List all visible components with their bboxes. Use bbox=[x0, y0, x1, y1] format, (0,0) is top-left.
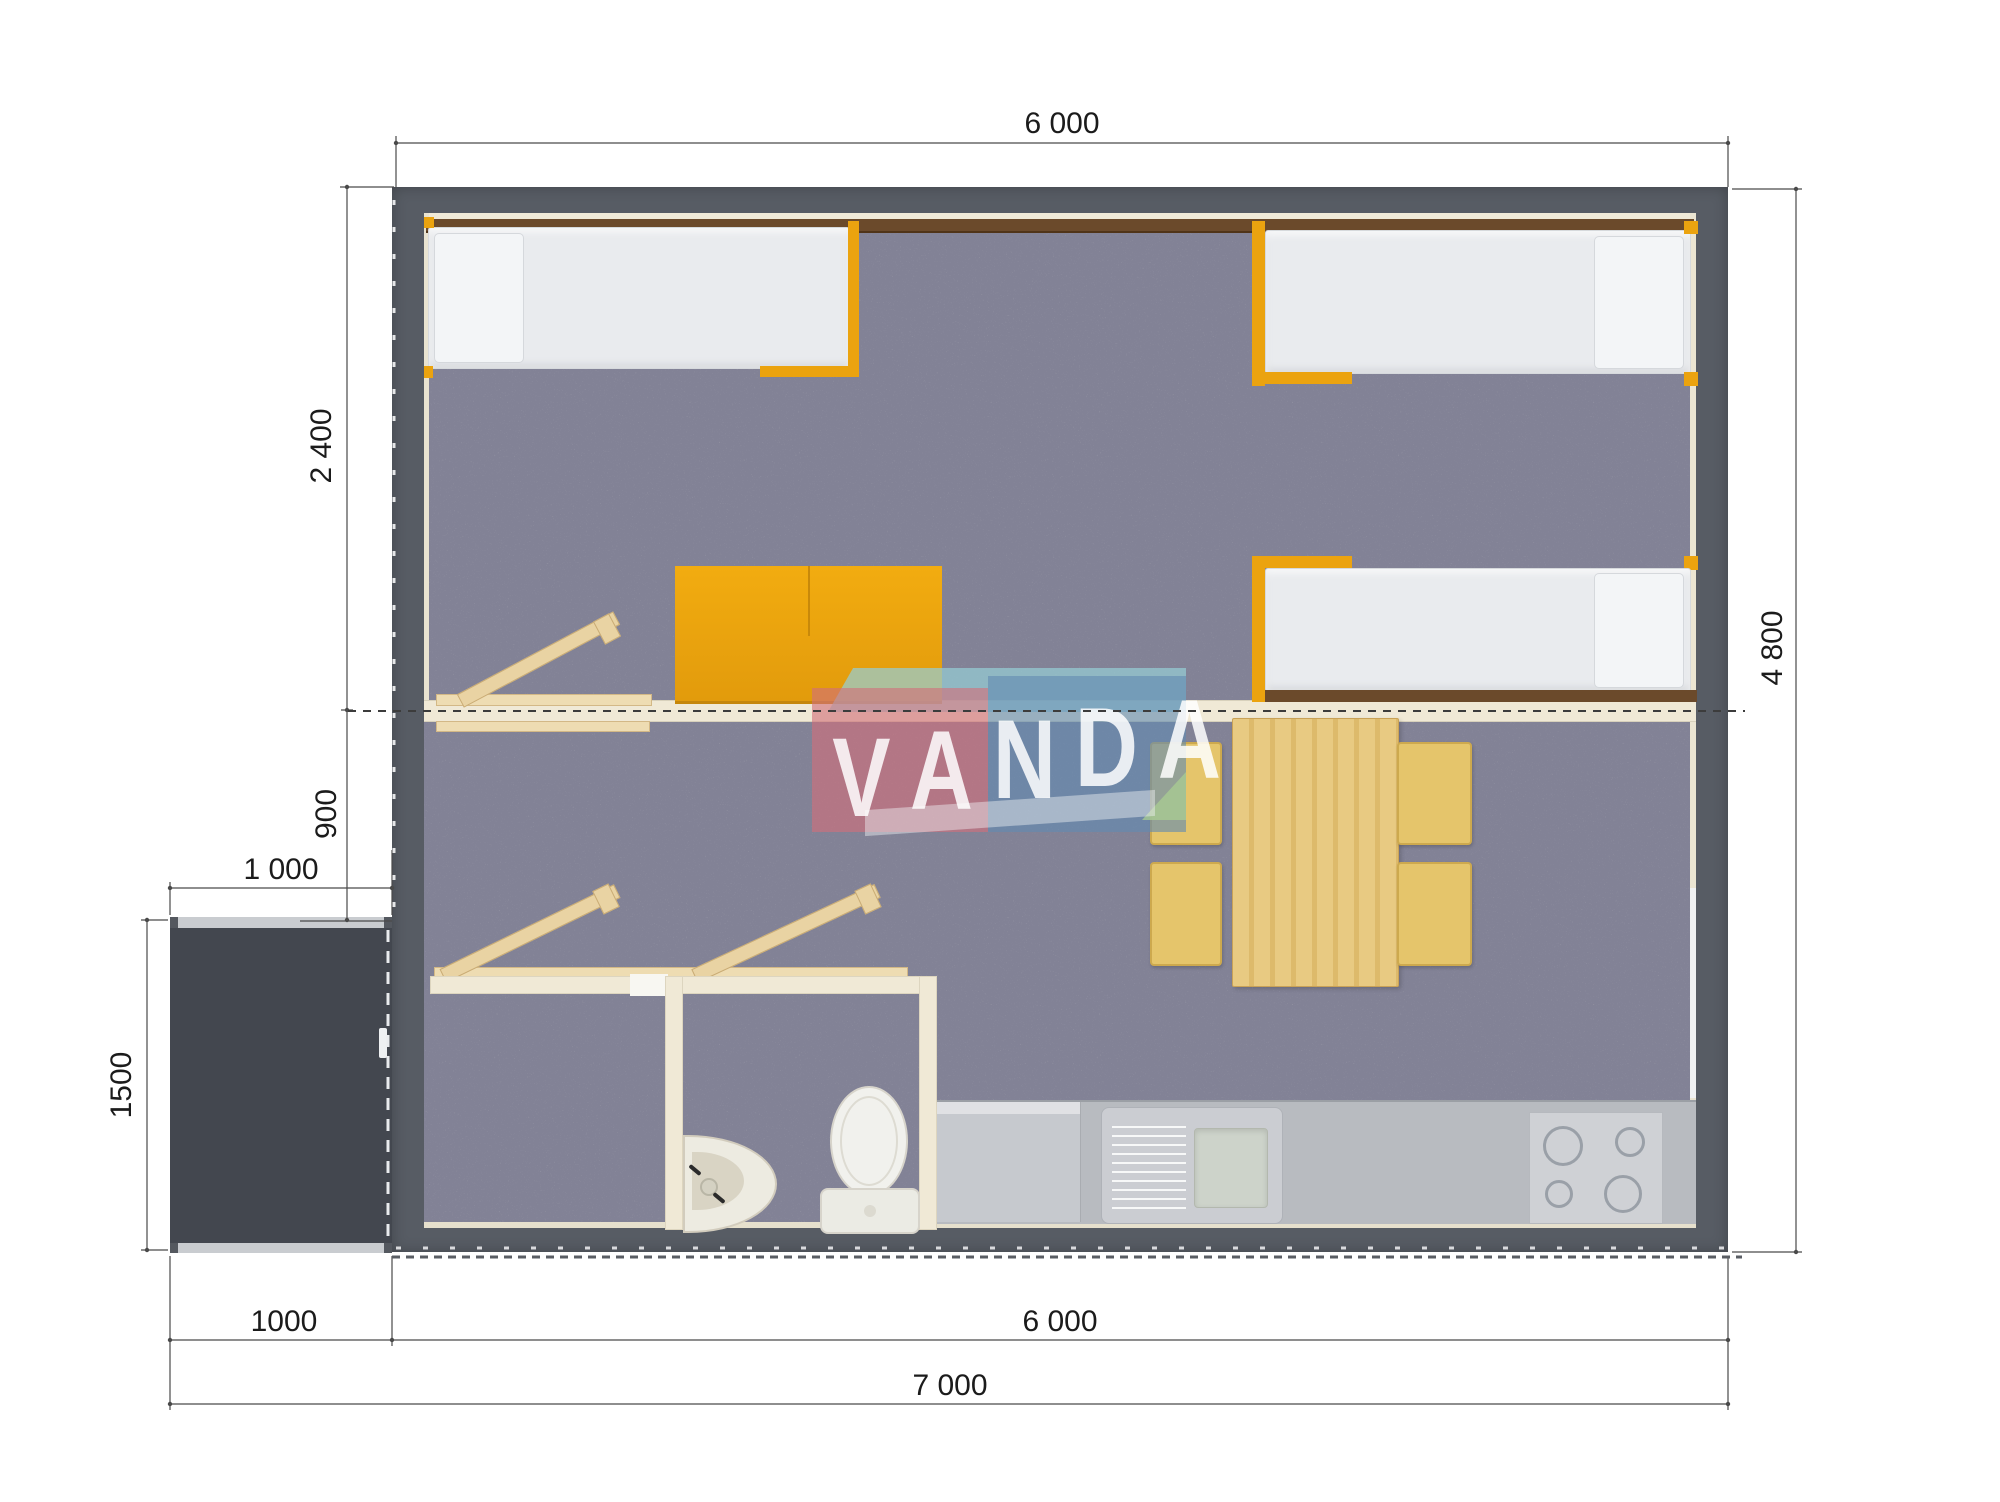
bed-frame bbox=[1252, 372, 1352, 384]
stove-burner-icon bbox=[1604, 1175, 1642, 1213]
kitchen-cabinet bbox=[937, 1102, 1081, 1222]
dim-label-bottom-porch: 1000 bbox=[251, 1305, 318, 1338]
bed-frame bbox=[1252, 221, 1265, 386]
flush-button-icon bbox=[864, 1205, 876, 1217]
dim-label-bottom-main: 6 000 bbox=[1022, 1305, 1097, 1338]
stove-burner-icon bbox=[1543, 1126, 1583, 1166]
porch-step-cap bbox=[384, 1243, 392, 1253]
dim-label-porch-depth: 1500 bbox=[105, 1052, 138, 1119]
bed-frame bbox=[1252, 556, 1352, 568]
bathroom-wall-middle bbox=[665, 976, 683, 1230]
chair bbox=[1397, 742, 1472, 845]
bathroom-door bbox=[630, 974, 668, 996]
chair bbox=[1397, 862, 1472, 966]
toilet-tank bbox=[820, 1188, 920, 1234]
bed-headboard bbox=[1265, 690, 1697, 702]
drainboard-icon bbox=[1112, 1126, 1186, 1210]
entrance-door-handle-icon bbox=[379, 1028, 387, 1058]
bathroom-wall-right bbox=[919, 976, 937, 1230]
porch-step-cap bbox=[384, 917, 392, 928]
bed-pillow bbox=[1594, 236, 1684, 369]
stove-burner-icon bbox=[1545, 1180, 1573, 1208]
bed-frame bbox=[424, 366, 433, 378]
chair bbox=[1150, 862, 1222, 966]
dim-label-hall-depth: 900 bbox=[310, 789, 343, 839]
bed-frame bbox=[1252, 556, 1265, 702]
bathroom-wall-top bbox=[430, 976, 937, 994]
kitchen-cabinet-highlight bbox=[937, 1102, 1080, 1114]
bed-frame bbox=[848, 221, 859, 377]
porch-step-cap bbox=[170, 1243, 178, 1253]
dim-label-top-width: 6 000 bbox=[1024, 107, 1099, 140]
dim-label-porch-width: 1 000 bbox=[243, 853, 318, 886]
floor-plan: V A N D A bbox=[0, 0, 2000, 1502]
porch-step-cap bbox=[170, 917, 178, 928]
bed-pillow bbox=[434, 233, 524, 363]
stove bbox=[1529, 1112, 1663, 1224]
window-right-wall bbox=[1690, 888, 1696, 1098]
porch bbox=[170, 928, 392, 1243]
toilet-seat bbox=[840, 1096, 898, 1186]
wardrobe-door-seam bbox=[808, 566, 810, 636]
bed-frame bbox=[760, 366, 848, 377]
bed-frame bbox=[424, 217, 434, 228]
dining-table bbox=[1232, 718, 1399, 987]
stove-burner-icon bbox=[1615, 1127, 1645, 1157]
chair bbox=[1150, 742, 1222, 845]
bed-pillow bbox=[1594, 573, 1684, 688]
toilet bbox=[830, 1086, 908, 1196]
bed-frame bbox=[1684, 372, 1698, 386]
bench-rail bbox=[436, 721, 650, 732]
bed-frame bbox=[1684, 221, 1698, 234]
dim-label-side-height: 4 800 bbox=[1756, 610, 1789, 685]
dim-label-bedroom-depth: 2 400 bbox=[305, 408, 338, 483]
kitchen-sink-basin bbox=[1194, 1128, 1268, 1208]
porch-step-bottom bbox=[170, 1243, 392, 1253]
porch-step-top bbox=[170, 917, 392, 928]
dim-label-bottom-total: 7 000 bbox=[912, 1369, 987, 1402]
